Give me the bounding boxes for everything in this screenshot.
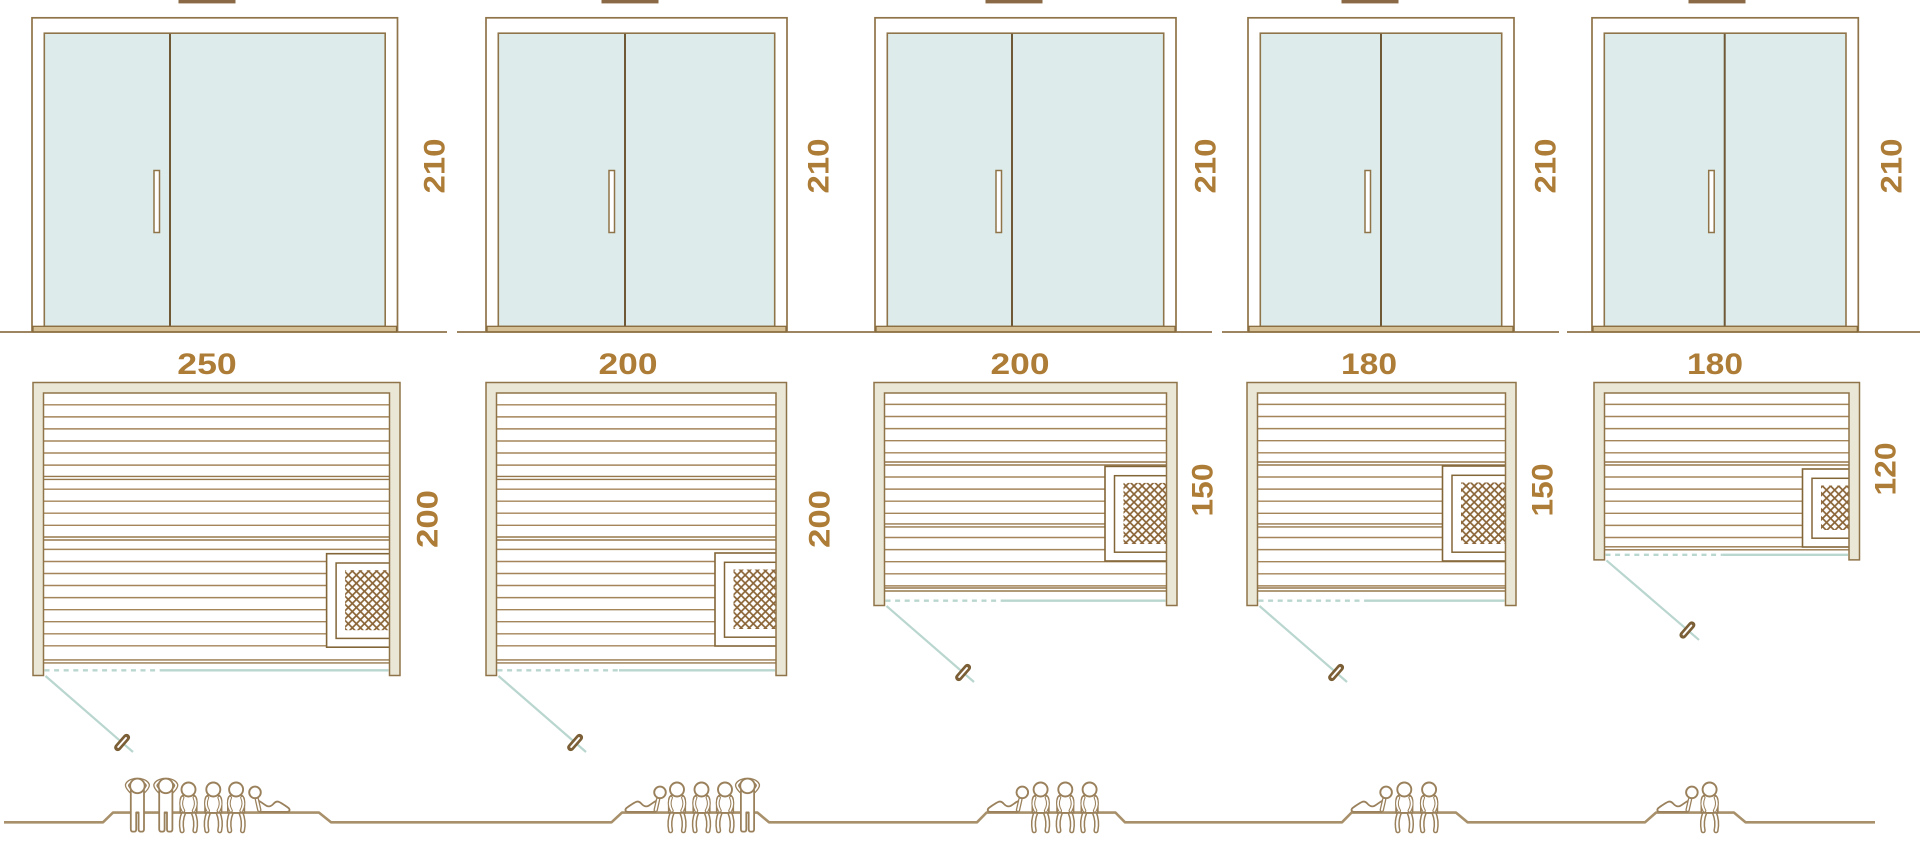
svg-text:120: 120	[1870, 443, 1903, 496]
svg-text:210: 210	[419, 139, 452, 194]
svg-text:210: 210	[803, 139, 836, 194]
svg-text:210: 210	[1190, 139, 1223, 194]
svg-text:180: 180	[1341, 348, 1397, 381]
svg-text:200: 200	[412, 490, 445, 548]
svg-text:200: 200	[991, 348, 1050, 381]
svg-text:150: 150	[1187, 464, 1220, 517]
svg-text:210: 210	[1876, 139, 1909, 194]
svg-text:180: 180	[1687, 348, 1743, 381]
svg-text:200: 200	[599, 348, 658, 381]
svg-text:210: 210	[1530, 139, 1563, 194]
svg-text:150: 150	[1527, 464, 1560, 517]
svg-text:200: 200	[804, 490, 837, 548]
svg-text:250: 250	[177, 348, 237, 381]
